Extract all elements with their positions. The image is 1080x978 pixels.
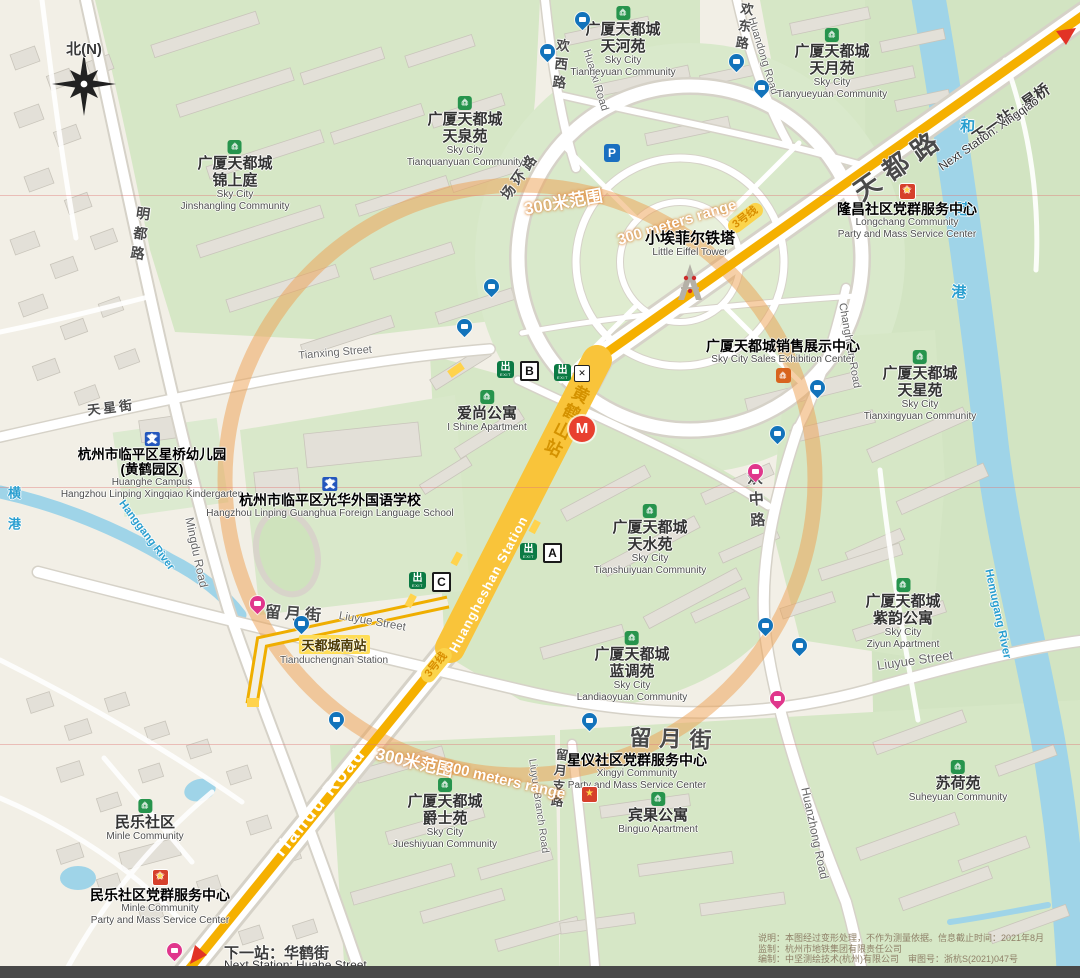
- poi-zh: 宾果公寓: [618, 807, 698, 824]
- exit-icon-c[interactable]: 出EXIT: [409, 572, 426, 589]
- poi-zh: 民乐社区: [106, 814, 183, 831]
- poi-en2: Tianyueyuan Community: [777, 89, 887, 101]
- exit-glyph: 出: [554, 366, 571, 376]
- poi-zh2: 紫韵公寓: [865, 610, 940, 627]
- exit-letter-b[interactable]: B: [520, 361, 539, 381]
- party-icon: ★: [899, 183, 916, 200]
- poi-zh1: 杭州市临平区星桥幼儿园: [61, 447, 243, 462]
- poi-zh2: 爵士苑: [393, 810, 497, 827]
- exit-glyph: 出: [520, 545, 537, 555]
- exit-letter-c[interactable]: C: [432, 572, 451, 592]
- poi-en2: Tianshuiyuan Community: [594, 565, 706, 577]
- poi-longchang-party-center[interactable]: ★ 隆昌社区党群服务中心 Longchang Community Party a…: [837, 182, 977, 240]
- poi-bus-station-tianduchengnan[interactable]: 天都城南站 Tianduchengnan Station: [280, 635, 388, 666]
- poi-zh1: 广厦天都城: [864, 365, 976, 382]
- road-label-liuyue-zh-big: 留月街: [629, 720, 720, 755]
- poi-sales-exhibition-center[interactable]: 广厦天都城销售展示中心 Sky City Sales Exhibition Ce…: [706, 338, 860, 385]
- bus-station-en: Tianduchengnan Station: [280, 655, 388, 666]
- community-icon: ⌂: [458, 96, 472, 110]
- poi-en1: Sky City: [864, 399, 976, 411]
- poi-en2: Jueshiyuan Community: [393, 839, 497, 851]
- poi-little-eiffel-tower[interactable]: 小埃菲尔铁塔 Little Eiffel Tower: [645, 231, 735, 259]
- poi-zh1: 广厦天都城: [594, 519, 706, 536]
- poi-en2: Tianquanyuan Community: [407, 157, 523, 169]
- poi-community-jueshiyuan[interactable]: ⌂ 广厦天都城 爵士苑 Sky City Jueshiyuan Communit…: [393, 778, 497, 850]
- poi-zh: 苏荷苑: [909, 775, 1007, 792]
- poi-en1: Xingyi Community: [567, 768, 707, 780]
- poi-binguo-apartment[interactable]: ⌂ 宾果公寓 Binguo Apartment: [618, 792, 698, 836]
- bottom-border-bar: [0, 966, 1080, 978]
- poi-zh1: 广厦天都城: [393, 793, 497, 810]
- poi-zh1: 广厦天都城: [181, 155, 290, 172]
- poi-en: Binguo Apartment: [618, 824, 698, 836]
- poi-zh1: 广厦天都城: [777, 43, 887, 60]
- poi-en2: Ziyun Apartment: [865, 639, 940, 651]
- poi-en1: Sky City: [594, 553, 706, 565]
- poi-minle-party-center[interactable]: ★ 民乐社区党群服务中心 Minle Community Party and M…: [90, 868, 230, 926]
- poi-community-tianquanyuan[interactable]: ⌂ 广厦天都城 天泉苑 Sky City Tianquanyuan Commun…: [407, 96, 523, 168]
- poi-en1: Minle Community: [90, 903, 230, 915]
- exit-icon-a[interactable]: 出EXIT: [520, 543, 537, 560]
- exit-icon-b[interactable]: 出EXIT: [497, 361, 514, 378]
- poi-zh2: 蓝调苑: [577, 663, 688, 680]
- community-icon: ⌂: [616, 6, 630, 20]
- party-icon: ★: [152, 869, 169, 886]
- community-icon: ⌂: [951, 760, 965, 774]
- map-disclaimer: 说明：本图经过变形处理，不作为测量依据。信息截止时间：2021年8月 监制：杭州…: [758, 933, 1073, 965]
- exit-sub: EXIT: [409, 584, 426, 588]
- poi-en: Suheyuan Community: [909, 792, 1007, 804]
- poi-zh2: 锦上庭: [181, 172, 290, 189]
- community-icon: ⌂: [643, 504, 657, 518]
- poi-ishine-apartment[interactable]: ⌂ 爱尚公寓 I Shine Apartment: [447, 390, 527, 434]
- exit-icon-b2[interactable]: 出EXIT: [554, 364, 571, 381]
- community-icon: ⌂: [228, 140, 242, 154]
- poi-zh1: 广厦天都城: [407, 111, 523, 128]
- poi-community-tianxingyuan[interactable]: ⌂ 广厦天都城 天星苑 Sky City Tianxingyuan Commun…: [864, 350, 976, 422]
- parking-icon[interactable]: P: [604, 144, 620, 162]
- poi-zh2: 天星苑: [864, 382, 976, 399]
- poi-zh1: 广厦天都城: [577, 646, 688, 663]
- poi-zh: 民乐社区党群服务中心: [90, 887, 230, 903]
- poi-en: I Shine Apartment: [447, 422, 527, 434]
- poi-community-jinshangling[interactable]: ⌂ 广厦天都城 锦上庭 Sky City Jinshangling Commun…: [181, 140, 290, 212]
- poi-zh2: 天泉苑: [407, 128, 523, 145]
- school-icon: 文: [322, 477, 337, 491]
- poi-en: Minle Community: [106, 831, 183, 843]
- poi-en1: Sky City: [181, 189, 290, 201]
- poi-community-ziyun[interactable]: ⌂ 广厦天都城 紫韵公寓 Sky City Ziyun Apartment: [865, 578, 940, 650]
- exit-glyph: 出: [497, 363, 514, 373]
- compass-label: 北(N): [66, 38, 102, 59]
- poi-zh2: (黄鹤园区): [61, 462, 243, 477]
- poi-en1: Longchang Community: [837, 217, 977, 229]
- poi-community-tianshuiyuan[interactable]: ⌂ 广厦天都城 天水苑 Sky City Tianshuiyuan Commun…: [594, 504, 706, 576]
- poi-zh: 小埃菲尔铁塔: [645, 231, 735, 247]
- community-icon: ⌂: [625, 631, 639, 645]
- community-icon: ⌂: [138, 799, 152, 813]
- sales-center-icon: ⌂: [776, 368, 791, 383]
- exit-sub: EXIT: [497, 373, 514, 377]
- community-icon: ⌂: [480, 390, 494, 404]
- poi-minle-community[interactable]: ⌂ 民乐社区 Minle Community: [106, 799, 183, 843]
- poi-en2: Party and Mass Service Center: [837, 229, 977, 241]
- poi-en1: Sky City: [577, 680, 688, 692]
- poi-en: Little Eiffel Tower: [645, 247, 735, 259]
- exit-glyph: 出: [409, 574, 426, 584]
- poi-zh: 隆昌社区党群服务中心: [837, 201, 977, 217]
- hangzhou-metro-logo[interactable]: M: [569, 416, 595, 442]
- poi-zh: 广厦天都城销售展示中心: [706, 338, 860, 354]
- exit-sub: EXIT: [520, 555, 537, 559]
- poi-community-tianyueyuan[interactable]: ⌂ 广厦天都城 天月苑 Sky City Tianyueyuan Communi…: [777, 28, 887, 100]
- poi-en1: Sky City: [777, 77, 887, 89]
- river-label-hanggang-zh: 横港: [4, 486, 23, 548]
- poi-en2: Party and Mass Service Center: [90, 915, 230, 927]
- disclaimer-line1: 说明：本图经过变形处理，不作为测量依据。信息截止时间：2021年8月: [758, 933, 1073, 944]
- poi-zh: 星仪社区党群服务中心: [567, 752, 707, 768]
- poi-zh1: 广厦天都城: [865, 593, 940, 610]
- poi-zh2: 天水苑: [594, 536, 706, 553]
- party-icon: ★: [581, 786, 598, 803]
- poi-community-landiaoyuan[interactable]: ⌂ 广厦天都城 蓝调苑 Sky City Landiaoyuan Communi…: [577, 631, 688, 703]
- exit-sub: EXIT: [554, 376, 571, 380]
- poi-zh2: 天河苑: [570, 38, 675, 55]
- gridline: [0, 744, 1080, 745]
- poi-zh1: 杭州市临平区光华外国语学校: [206, 492, 453, 508]
- poi-en: Sky City Sales Exhibition Center: [706, 354, 860, 366]
- exit-letter-a[interactable]: A: [543, 543, 562, 563]
- poi-en1: Sky City: [393, 827, 497, 839]
- bus-station-zh: 天都城南站: [298, 635, 369, 654]
- poi-en2: Jinshangling Community: [181, 201, 290, 213]
- school-icon: 文: [144, 432, 159, 446]
- community-icon: ⌂: [438, 778, 452, 792]
- poi-en2: Tianheyuan Community: [570, 67, 675, 79]
- poi-en1: Hangzhou Linping Guanghua Foreign Langua…: [206, 508, 453, 520]
- community-icon: ⌂: [825, 28, 839, 42]
- disclaimer-line3: 编制：中坚测绘技术(杭州)有限公司 审图号：浙杭S(2021)047号: [758, 954, 1073, 965]
- poi-suheyuan[interactable]: ⌂ 苏荷苑 Suheyuan Community: [909, 760, 1007, 804]
- poi-zh2: 天月苑: [777, 60, 887, 77]
- community-icon: ⌂: [651, 792, 665, 806]
- poi-en1: Sky City: [865, 627, 940, 639]
- poi-guanghua-school[interactable]: 文 杭州市临平区光华外国语学校 Hangzhou Linping Guanghu…: [206, 477, 453, 520]
- poi-en1: Sky City: [570, 55, 675, 67]
- elevator-icon[interactable]: ✕: [574, 365, 590, 382]
- community-icon: ⌂: [913, 350, 927, 364]
- poi-en1: Sky City: [407, 145, 523, 157]
- poi-zh: 爱尚公寓: [447, 405, 527, 422]
- poi-en2: Tianxingyuan Community: [864, 411, 976, 423]
- community-icon: ⌂: [896, 578, 910, 592]
- poi-en2: Landiaoyuan Community: [577, 692, 688, 704]
- station-area-map: 北(N) 天都路 Tiandu Road 明都路 Mingdu Road 天星街…: [0, 0, 1080, 978]
- disclaimer-line2: 监制：杭州市地铁集团有限责任公司: [758, 944, 1073, 955]
